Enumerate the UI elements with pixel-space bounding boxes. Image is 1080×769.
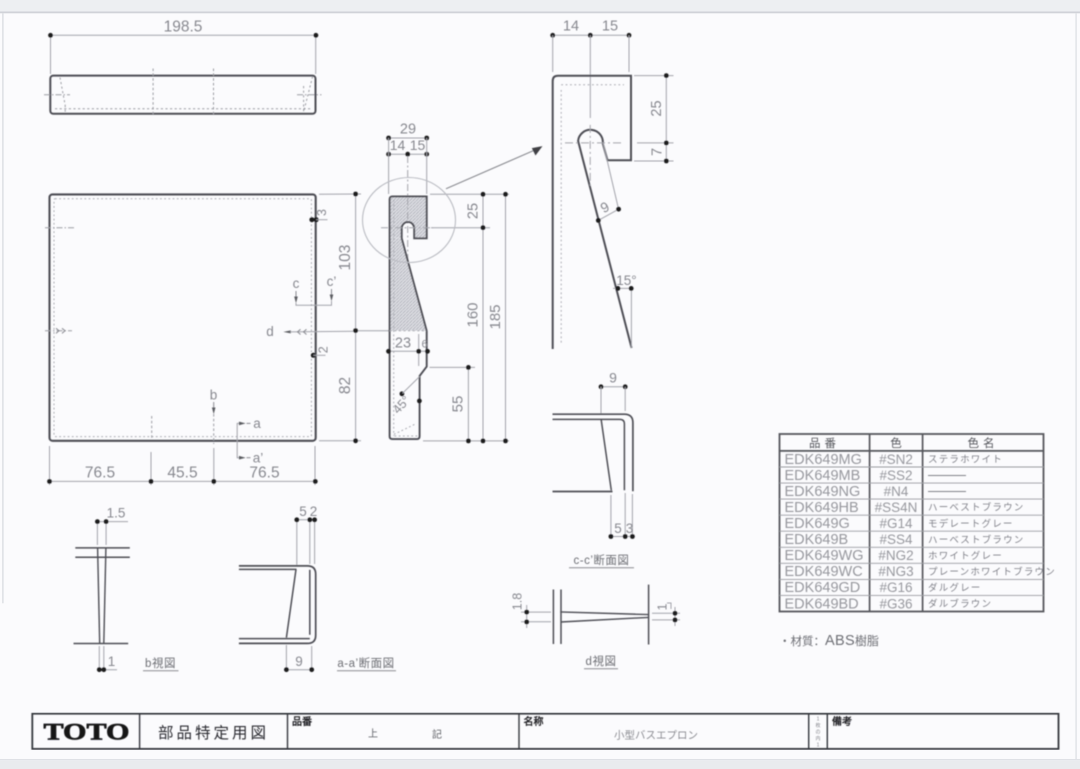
svg-text:15: 15 (410, 137, 426, 153)
svg-text:プレーンホワイトブラウン: プレーンホワイトブラウン (928, 566, 1056, 578)
svg-text:#SS4N: #SS4N (875, 500, 918, 515)
svg-text:5: 5 (614, 521, 622, 536)
svg-text:EDK649WC: EDK649WC (785, 564, 863, 580)
svg-text:小型バスエプロン: 小型バスエプロン (614, 728, 698, 741)
svg-text:9: 9 (609, 370, 617, 386)
svg-text:#NG2: #NG2 (878, 548, 913, 563)
svg-text:備考: 備考 (832, 715, 852, 728)
svg-text:TOTO: TOTO (44, 719, 130, 744)
svg-text:82: 82 (337, 377, 354, 394)
svg-text:#N4: #N4 (884, 484, 909, 499)
svg-text:7: 7 (649, 148, 665, 156)
svg-text:15°: 15° (616, 273, 636, 288)
svg-text:EDK649GD: EDK649GD (785, 580, 861, 596)
svg-text:1.8: 1.8 (511, 593, 525, 610)
svg-text:EDK649NG: EDK649NG (785, 484, 861, 500)
svg-text:25: 25 (649, 100, 665, 116)
svg-text:14: 14 (390, 137, 406, 153)
svg-text:名称: 名称 (524, 715, 544, 728)
svg-text:1: 1 (817, 717, 820, 723)
svg-text:76.5: 76.5 (249, 465, 279, 482)
svg-text:a’: a’ (253, 451, 264, 466)
svg-text:#SS4: #SS4 (879, 532, 913, 547)
svg-text:6: 6 (421, 339, 427, 351)
svg-text:#NG3: #NG3 (878, 564, 913, 579)
svg-text:c-c’断面図: c-c’断面図 (574, 553, 630, 567)
svg-text:1: 1 (108, 654, 116, 669)
svg-text:#G36: #G36 (879, 596, 912, 611)
svg-text:55: 55 (450, 396, 467, 413)
svg-text:14: 14 (563, 19, 579, 35)
svg-text:d視図: d視図 (586, 654, 617, 668)
svg-text:1.5: 1.5 (107, 506, 126, 521)
svg-text:色名: 色名 (968, 436, 999, 450)
svg-text:198.5: 198.5 (164, 19, 203, 36)
svg-text:76.5: 76.5 (85, 465, 115, 482)
svg-text:9: 9 (295, 654, 303, 669)
svg-text:EDK649B: EDK649B (785, 532, 849, 548)
svg-text:内: 内 (815, 735, 820, 742)
svg-text:EDK649HB: EDK649HB (785, 500, 859, 516)
svg-text:a: a (253, 416, 261, 431)
svg-text:#SS2: #SS2 (879, 468, 912, 483)
svg-text:45.5: 45.5 (167, 465, 197, 482)
svg-text:1: 1 (817, 743, 820, 749)
svg-text:1: 1 (656, 603, 670, 610)
svg-text:23: 23 (395, 336, 411, 352)
svg-text:ハーベストブラウン: ハーベストブラウン (928, 534, 1025, 546)
svg-text:c’: c’ (327, 274, 337, 289)
svg-text:d: d (266, 324, 274, 339)
svg-text:#SN2: #SN2 (879, 452, 913, 467)
svg-text:ダルブラウン: ダルブラウン (928, 598, 992, 610)
svg-text:枚: 枚 (815, 722, 820, 729)
svg-text:ステラホワイト: ステラホワイト (928, 455, 1003, 466)
svg-text:モデレートグレー: モデレートグレー (928, 518, 1014, 530)
svg-text:・材質：ABS樹脂: ・材質：ABS樹脂 (779, 633, 879, 649)
svg-text:色: 色 (890, 436, 902, 450)
svg-text:記: 記 (432, 728, 442, 741)
svg-text:部品特定用図: 部品特定用図 (158, 724, 269, 742)
svg-text:の: の (815, 730, 820, 736)
svg-text:3: 3 (315, 209, 329, 216)
svg-text:EDK649G: EDK649G (785, 516, 850, 532)
svg-text:品番: 品番 (809, 437, 840, 450)
svg-text:EDK649BD: EDK649BD (785, 596, 859, 612)
svg-text:b視図: b視図 (145, 656, 176, 670)
svg-text:EDK649WG: EDK649WG (785, 548, 864, 564)
svg-text:15: 15 (602, 19, 618, 35)
svg-text:103: 103 (337, 245, 354, 271)
svg-text:EDK649MG: EDK649MG (785, 452, 862, 468)
svg-text:160: 160 (464, 302, 481, 327)
svg-text:c: c (293, 276, 300, 291)
svg-text:5: 5 (299, 504, 307, 519)
svg-text:品番: 品番 (292, 715, 313, 728)
svg-text:#G14: #G14 (879, 516, 913, 531)
svg-text:a-a’断面図: a-a’断面図 (337, 656, 394, 670)
svg-text:25: 25 (465, 203, 481, 219)
svg-text:EDK649MB: EDK649MB (785, 468, 861, 484)
svg-text:29: 29 (400, 122, 416, 138)
svg-text:3: 3 (626, 521, 634, 536)
svg-text:上: 上 (368, 728, 378, 740)
svg-text:ホワイトグレー: ホワイトグレー (928, 550, 1003, 562)
svg-text:b: b (210, 388, 218, 403)
svg-text:2: 2 (310, 504, 318, 519)
svg-text:185: 185 (487, 304, 504, 329)
svg-text:#G16: #G16 (879, 580, 912, 595)
svg-text:ダルグレー: ダルグレー (928, 582, 982, 594)
svg-text:2: 2 (317, 346, 331, 353)
svg-text:ハーベストブラウン: ハーベストブラウン (928, 502, 1025, 514)
